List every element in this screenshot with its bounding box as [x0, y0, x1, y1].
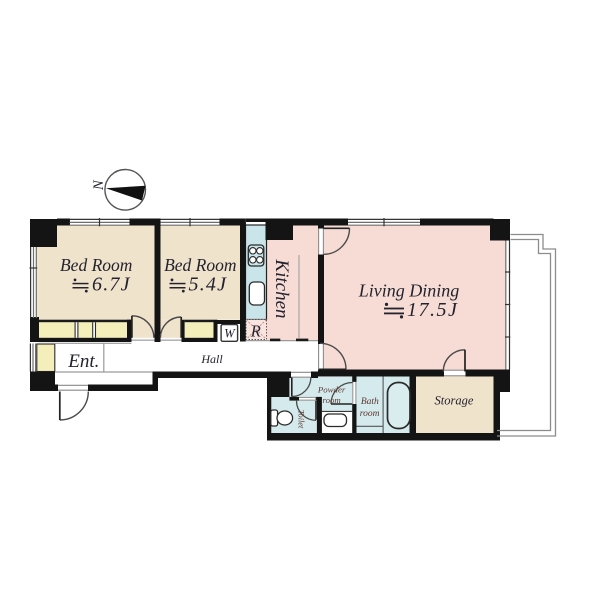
- svg-text:Kitchen: Kitchen: [271, 258, 292, 318]
- svg-text:Ent.: Ent.: [67, 351, 99, 372]
- svg-text:Bed Room: Bed Room: [60, 255, 132, 275]
- svg-text:Powder: Powder: [317, 385, 346, 395]
- svg-text:5.4J: 5.4J: [189, 274, 228, 296]
- svg-text:17.5J: 17.5J: [407, 299, 458, 321]
- svg-text:N: N: [91, 179, 107, 191]
- svg-text:room: room: [322, 395, 340, 405]
- svg-text:Toilet: Toilet: [296, 410, 305, 429]
- svg-text:Bath: Bath: [361, 397, 379, 407]
- svg-text:Bed Room: Bed Room: [164, 255, 236, 275]
- svg-text:Living Dining: Living Dining: [358, 281, 460, 301]
- svg-text:room: room: [360, 409, 380, 419]
- svg-text:R: R: [250, 322, 261, 341]
- svg-text:6.7J: 6.7J: [92, 274, 131, 296]
- svg-text:Hall: Hall: [200, 352, 223, 366]
- svg-text:W: W: [224, 326, 236, 340]
- svg-text:Storage: Storage: [435, 394, 474, 408]
